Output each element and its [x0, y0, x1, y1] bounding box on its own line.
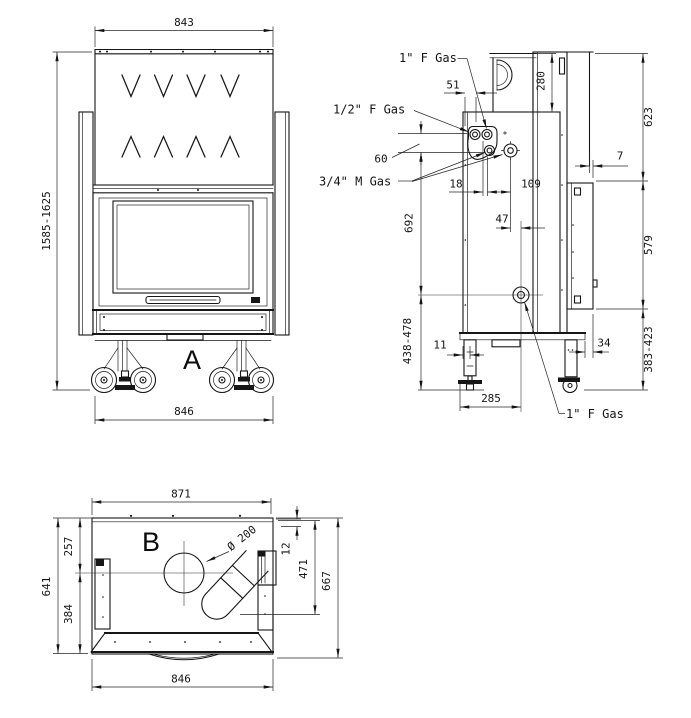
dim-257: 257 [62, 537, 75, 557]
dim-11: 11 [433, 339, 446, 352]
dim-flue-diameter: Ø 200 [225, 523, 259, 554]
dim-384: 384 [62, 604, 75, 624]
gas-label-half-f: 1/2" F Gas [333, 103, 405, 117]
dim-34: 34 [597, 337, 611, 350]
dim-383-423: 383-423 [642, 326, 655, 372]
dim-109: 109 [521, 178, 541, 191]
dim-7: 7 [617, 150, 624, 163]
dim-871: 871 [171, 488, 191, 501]
dim-280: 280 [535, 71, 548, 91]
dim-438-478: 438-478 [401, 318, 414, 364]
dim-front-bottom-width: 846 [174, 405, 194, 418]
dim-51: 51 [446, 79, 459, 92]
dim-623: 623 [642, 107, 655, 127]
technical-drawing-sheet: 843 1585-1625 846 A [0, 0, 691, 718]
dim-47: 47 [495, 213, 508, 226]
side-view: 1" F Gas 51 280 1/2" F Gas 60 3/4" M Gas… [319, 51, 655, 421]
dim-579: 579 [642, 235, 655, 255]
gas-label-1f-top: 1" F Gas [399, 51, 457, 65]
dim-12: 12 [280, 542, 293, 555]
dim-667: 667 [320, 571, 333, 591]
flue-elbow-arc [497, 60, 512, 90]
caster-wheel [210, 368, 235, 393]
side-dimensions: 1" F Gas 51 280 1/2" F Gas 60 3/4" M Gas… [319, 51, 655, 421]
louver-chevrons [122, 75, 239, 157]
dim-692: 692 [403, 213, 416, 233]
plan-view: B Ø 200 871 12 471 667 257 384 641 846 [40, 488, 343, 692]
side-outline [458, 52, 597, 393]
dim-285: 285 [481, 392, 501, 405]
front-view-label: A [183, 345, 201, 375]
gas-label-three-quarter-m: 3/4" M Gas [319, 175, 391, 189]
gas-label-1f-bottom: 1" F Gas [566, 407, 624, 421]
caster-wheel [92, 368, 117, 393]
gas-manifold-bracket [468, 127, 520, 160]
dim-front-top-width: 843 [174, 16, 194, 29]
plan-view-label: B [142, 527, 160, 557]
dim-641: 641 [40, 577, 53, 597]
drawing-canvas: 843 1585-1625 846 A [0, 0, 691, 718]
front-outline [79, 50, 289, 341]
dim-plan-846: 846 [171, 673, 191, 686]
dim-18: 18 [449, 178, 462, 191]
dim-471: 471 [297, 559, 310, 579]
dim-60: 60 [374, 153, 387, 166]
front-view: 843 1585-1625 846 A [40, 16, 289, 424]
dim-front-height-range: 1585-1625 [40, 191, 53, 251]
